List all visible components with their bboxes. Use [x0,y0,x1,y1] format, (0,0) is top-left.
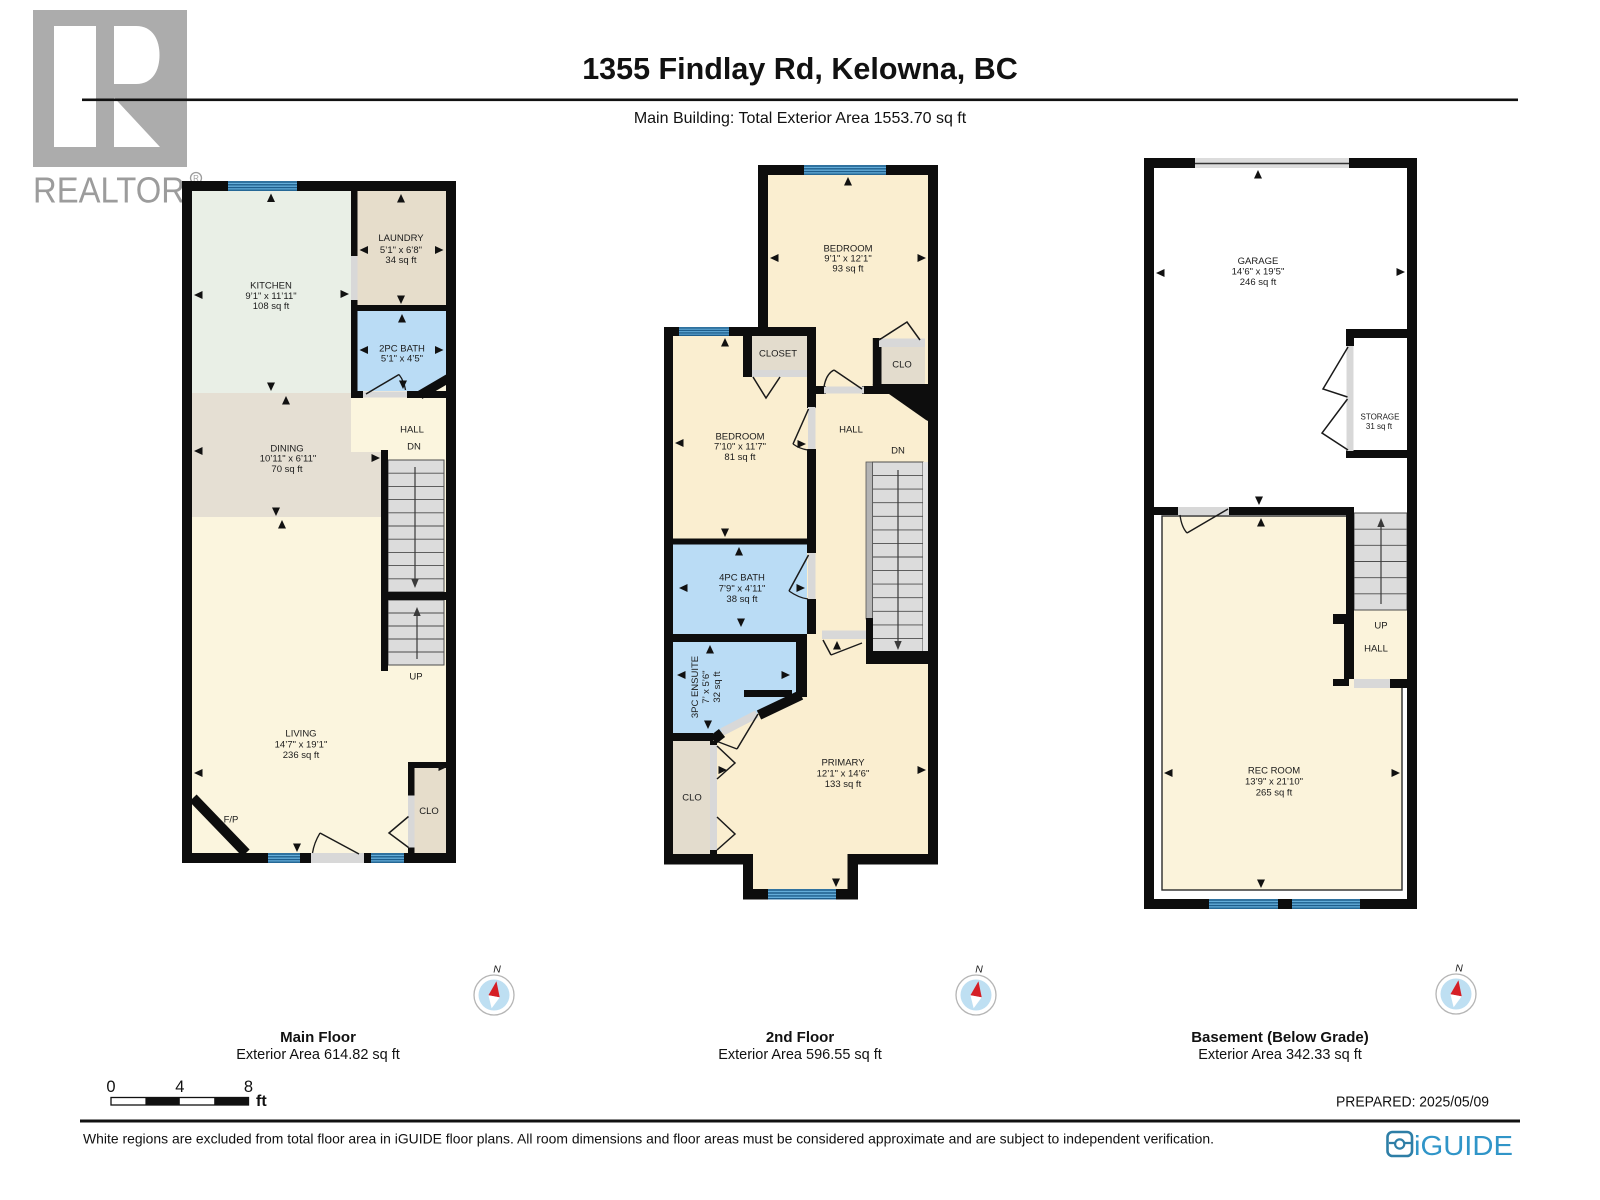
svg-text:70 sq ft: 70 sq ft [271,464,303,475]
svg-text:13’9" x 21’10": 13’9" x 21’10" [1245,777,1303,788]
svg-text:DN: DN [407,442,421,453]
svg-text:14’7" x 19’1": 14’7" x 19’1" [275,740,328,751]
svg-text:HALL: HALL [1364,644,1388,655]
svg-text:iGUIDE: iGUIDE [1414,1130,1513,1161]
svg-text:246 sq ft: 246 sq ft [1240,277,1277,288]
svg-text:4: 4 [175,1078,184,1096]
svg-text:Main Building: Total Exterior: Main Building: Total Exterior Area 1553.… [634,110,967,127]
svg-text:HALL: HALL [839,425,863,436]
svg-text:34 sq ft: 34 sq ft [385,255,417,266]
svg-text:236 sq ft: 236 sq ft [283,750,320,761]
svg-text:UP: UP [1374,621,1387,632]
svg-text:108 sq ft: 108 sq ft [253,301,290,312]
svg-text:N: N [493,964,501,976]
svg-text:4PC BATH: 4PC BATH [719,573,765,584]
svg-text:Exterior Area 342.33 sq ft: Exterior Area 342.33 sq ft [1198,1047,1362,1063]
svg-text:7’9" x 4’11": 7’9" x 4’11" [719,584,766,595]
svg-text:3PC ENSUITE: 3PC ENSUITE [690,656,701,718]
svg-text:HALL: HALL [400,425,424,436]
svg-text:UP: UP [409,672,422,683]
svg-text:265 sq ft: 265 sq ft [1256,788,1293,799]
svg-text:Main Floor: Main Floor [280,1029,356,1046]
svg-text:N: N [975,964,983,976]
svg-text:LIVING: LIVING [285,729,316,740]
svg-text:PREPARED: 2025/05/09: PREPARED: 2025/05/09 [1336,1094,1489,1111]
svg-text:93 sq ft: 93 sq ft [832,264,864,275]
svg-text:DN: DN [891,446,905,457]
svg-text:PRIMARY: PRIMARY [821,758,865,769]
svg-text:CLO: CLO [892,360,912,371]
svg-text:8: 8 [244,1078,253,1096]
svg-text:STORAGE: STORAGE [1361,413,1400,422]
svg-text:31 sq ft: 31 sq ft [1366,422,1393,431]
svg-text:7’10" x 11’7": 7’10" x 11’7" [714,442,766,453]
svg-text:ft: ft [256,1093,267,1110]
svg-text:CLO: CLO [682,793,702,804]
svg-text:81 sq ft: 81 sq ft [724,452,756,463]
svg-text:REC ROOM: REC ROOM [1248,766,1300,777]
svg-text:7’ x 5’6": 7’ x 5’6" [701,670,712,703]
svg-text:38 sq ft: 38 sq ft [726,594,758,605]
svg-text:White regions are excluded fro: White regions are excluded from total fl… [83,1131,1214,1147]
svg-text:10’11" x 6’11": 10’11" x 6’11" [260,454,317,465]
svg-text:2nd Floor: 2nd Floor [766,1029,834,1046]
svg-text:133 sq ft: 133 sq ft [825,779,862,790]
svg-text:1355 Findlay Rd, Kelowna, BC: 1355 Findlay Rd, Kelowna, BC [582,52,1018,86]
svg-text:12’1" x 14’6": 12’1" x 14’6" [817,769,870,780]
svg-text:N: N [1455,963,1463,975]
svg-text:CLO: CLO [419,806,439,817]
svg-text:LAUNDRY: LAUNDRY [378,233,424,244]
svg-text:GARAGE: GARAGE [1238,256,1279,267]
svg-text:F/P: F/P [224,815,239,826]
svg-text:5’1" x 4’5": 5’1" x 4’5" [381,354,423,365]
svg-text:Basement (Below Grade): Basement (Below Grade) [1191,1029,1369,1046]
svg-text:32 sq ft: 32 sq ft [712,671,723,703]
svg-text:CLOSET: CLOSET [759,349,797,360]
svg-text:Exterior Area 596.55 sq ft: Exterior Area 596.55 sq ft [718,1047,882,1063]
svg-text:REALTOR: REALTOR [33,170,185,211]
svg-text:Exterior Area 614.82 sq ft: Exterior Area 614.82 sq ft [236,1047,400,1063]
svg-text:0: 0 [106,1078,115,1096]
svg-text:14’6" x 19’5": 14’6" x 19’5" [1232,267,1285,278]
svg-text:KITCHEN: KITCHEN [250,281,292,292]
